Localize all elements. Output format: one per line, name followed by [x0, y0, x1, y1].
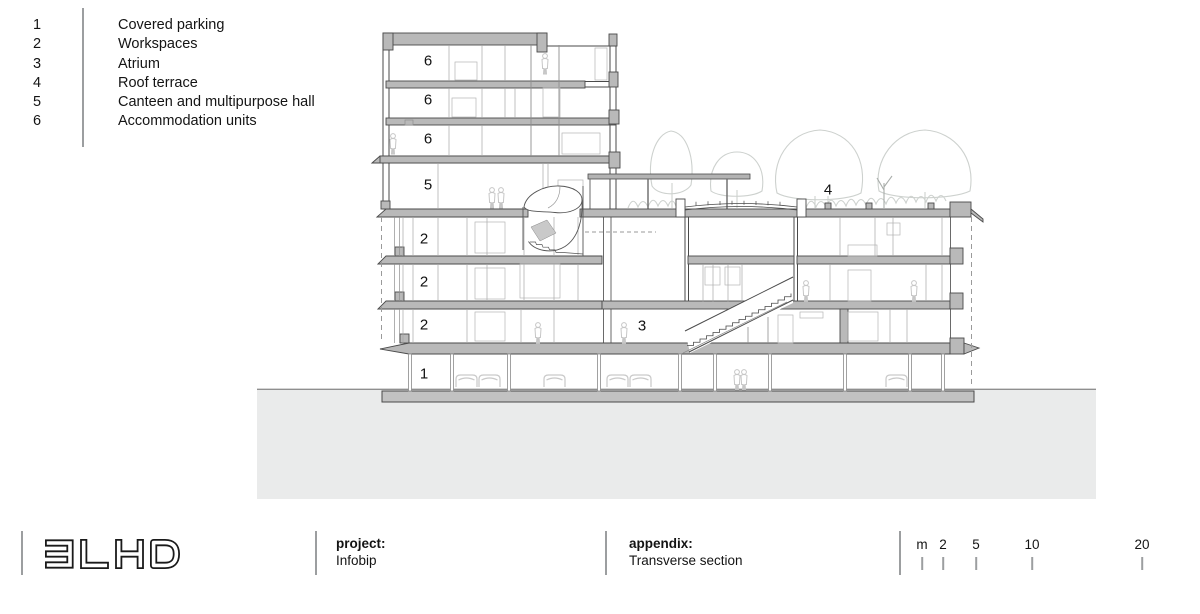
project-label: project:: [336, 536, 386, 553]
scale-tick: [921, 557, 923, 570]
section-drawing-svg: [0, 0, 1200, 614]
floor-label-6: 6: [424, 53, 432, 70]
atrium-glass: [604, 217, 951, 343]
floor-label-6: 6: [424, 92, 432, 109]
section-drawing: 6 6 6 5 2 2 2 1 3 4: [0, 0, 1200, 614]
project-value: Infobip: [336, 553, 386, 570]
spiral-staircase: [523, 186, 583, 256]
ground: [257, 389, 1096, 499]
scale-label-5: 5: [972, 537, 980, 552]
parking-columns: [409, 354, 945, 391]
footer-divider: [315, 531, 317, 575]
footer-divider: [899, 531, 901, 575]
scale-label-m: m: [916, 537, 927, 552]
scale-tick: [1141, 557, 1143, 570]
scale-label-20: 20: [1134, 537, 1149, 552]
company-logo-3lhd: [40, 532, 190, 572]
footer-divider: [605, 531, 607, 575]
floor-label-1: 1: [420, 366, 428, 383]
floor-label-2: 2: [420, 274, 428, 291]
appendix-value: Transverse section: [629, 553, 743, 570]
grand-staircase: [683, 277, 793, 353]
scale-label-2: 2: [939, 537, 947, 552]
scale-tick: [975, 557, 977, 570]
appendix-block: appendix: Transverse section: [629, 536, 743, 569]
floor-label-2: 2: [420, 231, 428, 248]
scale-label-10: 10: [1024, 537, 1039, 552]
scale-tick: [942, 557, 944, 570]
project-block: project: Infobip: [336, 536, 386, 569]
floor-label-3: 3: [638, 318, 646, 335]
floor-label-6: 6: [424, 131, 432, 148]
scale-tick: [1031, 557, 1033, 570]
trees: [628, 130, 971, 208]
appendix-label: appendix:: [629, 536, 743, 553]
page: 1 2 3 4 5 6 Covered parking Workspaces A…: [0, 0, 1200, 614]
floor-label-4: 4: [824, 182, 832, 199]
floor-label-5: 5: [424, 177, 432, 194]
human-figures: [390, 54, 917, 390]
floor-label-2: 2: [420, 317, 428, 334]
footer-divider: [21, 531, 23, 575]
